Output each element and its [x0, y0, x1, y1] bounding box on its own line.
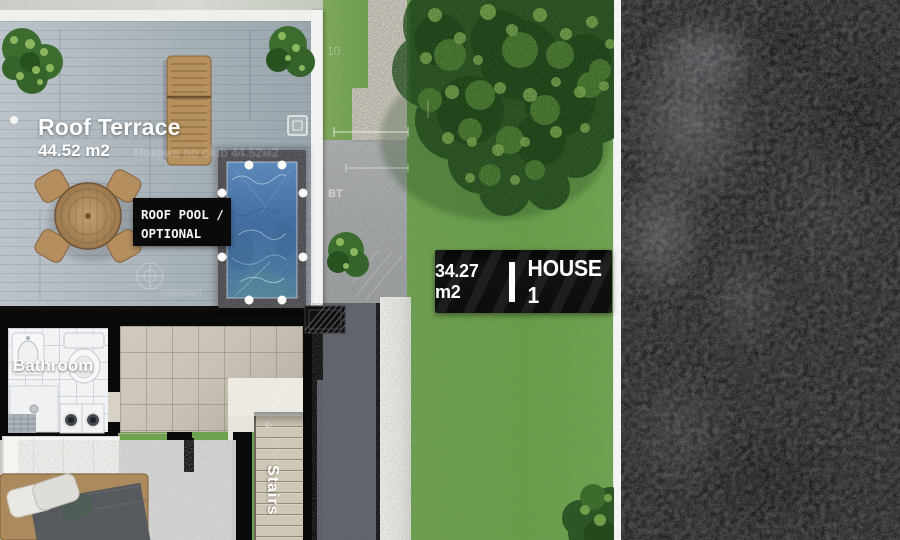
roof-terrace-area: 44.52 m2 [38, 141, 110, 161]
bt-annotation: BT [328, 188, 343, 200]
house-label-divider [509, 262, 514, 302]
bathroom-label: Bathroom [13, 356, 93, 376]
house-area: 34.27 m2 [435, 261, 500, 303]
asphalt-texture [610, 0, 900, 540]
house-label: 34.27 m2 HOUSE 1 [435, 250, 612, 313]
roof-terrace-title: Roof Terrace [38, 114, 181, 141]
roof-terrace-ghost-text: Покрив по club 44.52м2 [134, 146, 279, 160]
house-name: HOUSE 1 [527, 255, 608, 309]
bed [0, 472, 151, 540]
roof-pool-label: ROOF POOL / OPTIONAL [133, 198, 231, 246]
washer-dryer [60, 404, 104, 433]
roof-pool-label-line2: OPTIONAL [141, 224, 231, 243]
skylight-icon [288, 116, 307, 135]
ghost-fixture-icon [137, 263, 163, 289]
roof-pool-label-line1: ROOF POOL / [141, 205, 231, 224]
shower [8, 386, 58, 433]
gravel-texture [312, 303, 376, 540]
deck-dot [10, 116, 18, 124]
ten-annotation: 10 [327, 44, 340, 58]
site-plan: Roof Terrace 44.52 m2 Покрив по club 44.… [0, 0, 900, 540]
parapet-ghost-text: парапет [160, 287, 203, 299]
stairs-label: Stairs [263, 465, 281, 515]
step-shadow [254, 412, 306, 426]
concrete-texture [322, 140, 407, 303]
